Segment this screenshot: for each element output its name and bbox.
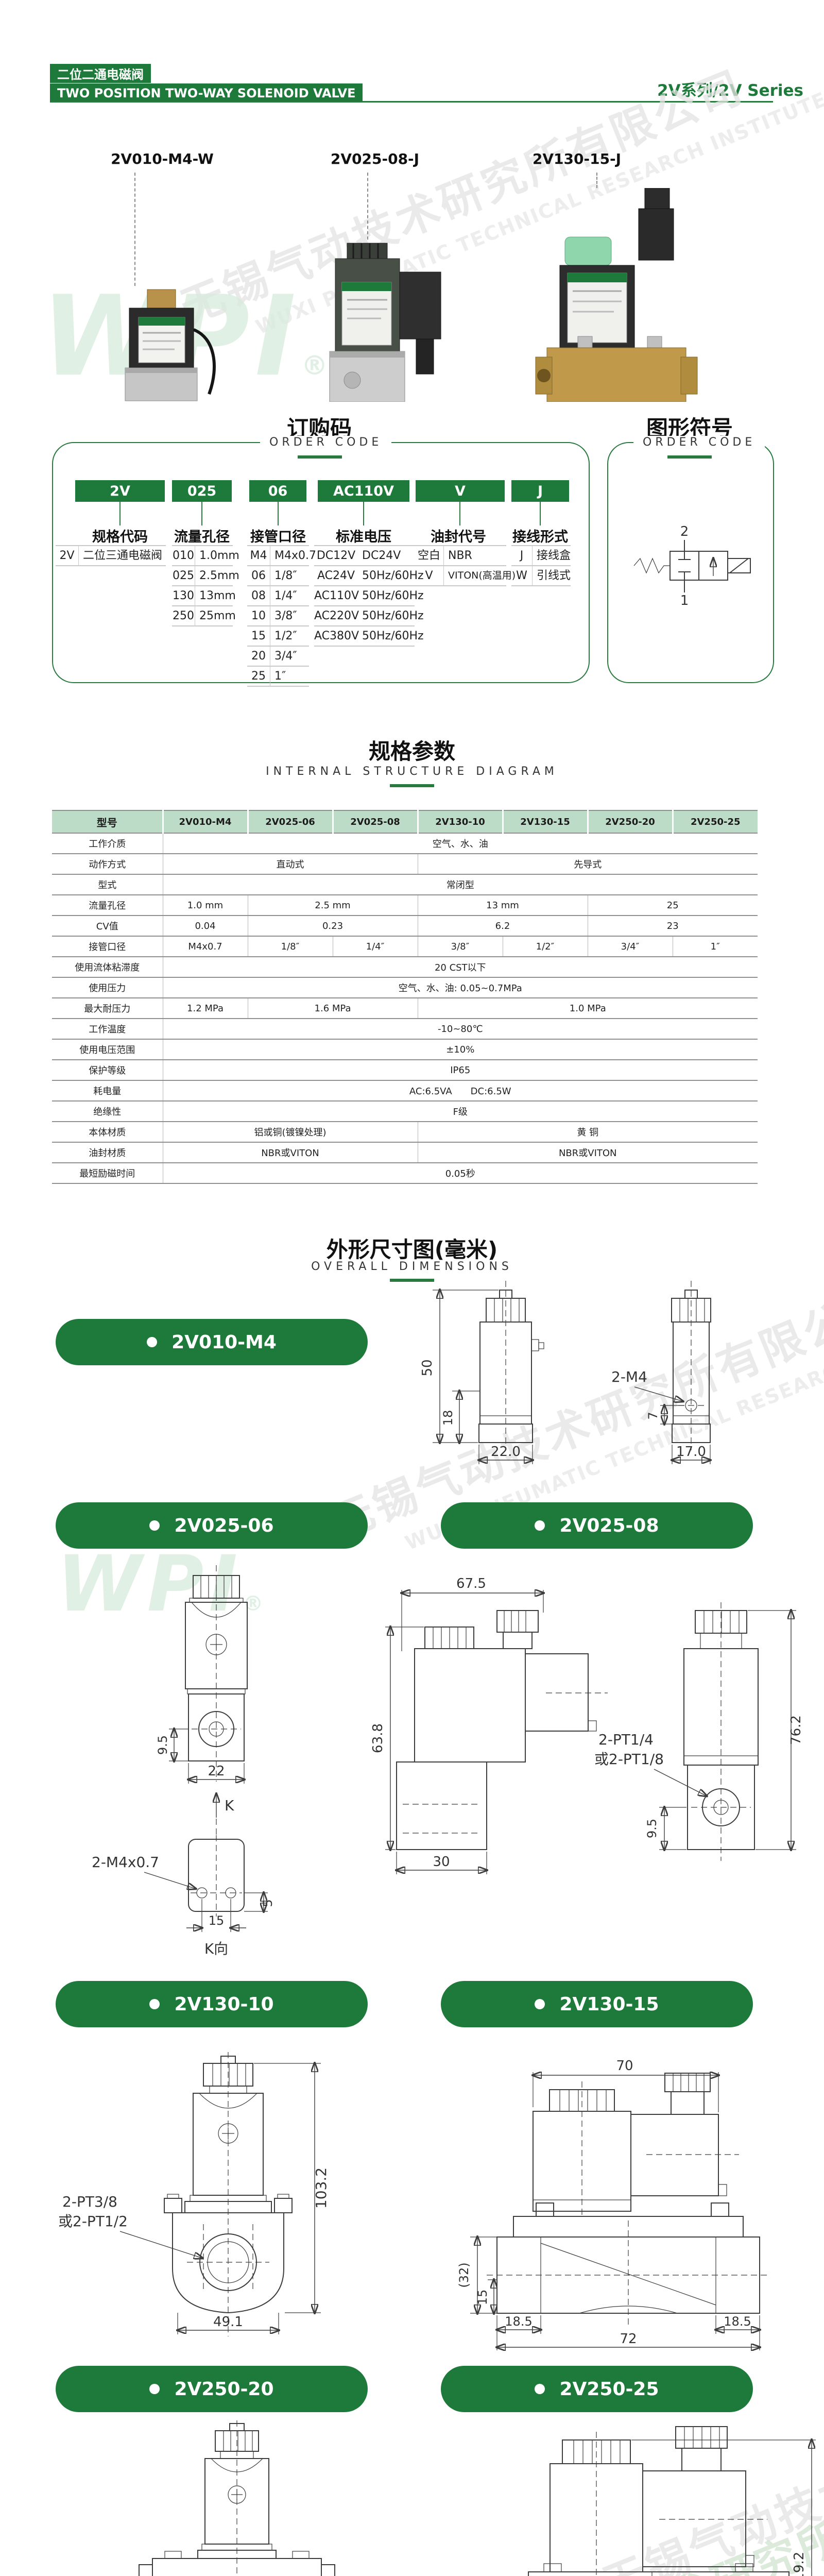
bullet-icon xyxy=(535,1999,545,2009)
svg-text:76.2: 76.2 xyxy=(788,1715,804,1745)
svg-text:7: 7 xyxy=(646,1412,660,1419)
spec-row: 动作方式直动式先导式 xyxy=(52,854,758,874)
svg-text:103.2: 103.2 xyxy=(313,2167,330,2209)
svg-text:2-PT3/8: 2-PT3/8 xyxy=(62,2193,117,2210)
header-badge-en: TWO POSITION TWO-WAY SOLENOID VALVE xyxy=(50,83,363,103)
dims-title-cn: 外形尺寸图(毫米) xyxy=(283,1232,541,1264)
series-label: 2V系列/2V Series xyxy=(603,77,803,100)
svg-text:72: 72 xyxy=(620,2331,637,2347)
group-table-orifice: 0101.0mm 0252.5mm 13013mm 25025mm xyxy=(172,545,233,626)
spec-model: 2V250-25 xyxy=(673,810,758,833)
group-label-seal: 油封代号 xyxy=(417,526,500,546)
pill-2v250-20: 2V250-20 xyxy=(56,2366,368,2412)
spec-row: 流量孔径1.0 mm2.5 mm13 mm25 xyxy=(52,895,758,916)
leader-dash-2 xyxy=(367,173,368,240)
pill-2v025-08: 2V025-08 xyxy=(441,1502,753,1549)
code-box-model: 2V xyxy=(75,480,165,502)
header-title-en: TWO POSITION TWO-WAY SOLENOID VALVE xyxy=(57,86,355,100)
drawing-2v025-06: 9.5 22 K 2-M4x0.7 15 5 K向 xyxy=(62,1551,412,1968)
group-table-port: M4M4x0.7 061/8″ 081/4″ 103/8″ 151/2″ 203… xyxy=(247,545,309,687)
group-label-wiring: 接线形式 xyxy=(499,526,581,546)
code-connector xyxy=(540,502,541,526)
svg-text:50: 50 xyxy=(420,1359,435,1376)
svg-text:K向: K向 xyxy=(204,1940,228,1957)
code-box-orifice: 025 xyxy=(172,480,232,502)
catalog-page: 二位二通电磁阀 TWO POSITION TWO-WAY SOLENOID VA… xyxy=(0,0,824,2576)
valve-symbol-diagram: 2 1 xyxy=(623,515,757,618)
svg-text:18.5: 18.5 xyxy=(724,2314,751,2329)
svg-text:67.5: 67.5 xyxy=(456,1576,486,1591)
svg-text:70: 70 xyxy=(616,2058,633,2074)
specs-title-en: INTERNAL STRUCTURE DIAGRAM xyxy=(257,765,566,778)
code-connector xyxy=(278,502,279,526)
pill-2v130-10: 2V130-10 xyxy=(56,1981,368,2027)
pill-2v025-06: 2V025-06 xyxy=(56,1502,368,1549)
code-connector xyxy=(119,502,121,526)
svg-text:17.0: 17.0 xyxy=(676,1444,706,1460)
spec-model: 2V025-08 xyxy=(333,810,418,833)
header-title-cn: 二位二通电磁阀 xyxy=(57,64,144,82)
drawing-2v250-20: 2-PT3/4 或2-PT1/2 77.5 xyxy=(51,2416,412,2576)
spec-table: 型号 2V010-M4 2V025-06 2V025-08 2V130-10 2… xyxy=(52,810,758,1184)
group-table-wiring: J接线盒 W引线式 xyxy=(511,545,571,586)
spec-model: 2V025-06 xyxy=(248,810,333,833)
svg-text:18: 18 xyxy=(441,1410,455,1426)
order-code-title-en: ORDER CODE xyxy=(260,436,391,449)
header-rule xyxy=(51,101,773,103)
pill-2v010-m4: 2V010-M4 xyxy=(56,1319,368,1365)
header-badge-cn: 二位二通电磁阀 xyxy=(50,64,151,83)
drawing-2v025-08: 67.5 63.8 30 76.2 2-PT1/4 或2-PT1/8 xyxy=(366,1561,819,1973)
svg-text:(32): (32) xyxy=(457,2262,471,2287)
group-table-voltage: DC12VDC24V AC24V50Hz/60Hz AC110V50Hz/60H… xyxy=(314,545,415,647)
product-label-2v130: 2V130-15-J xyxy=(512,150,641,167)
spec-row: 最短励磁时间0.05秒 xyxy=(52,1163,758,1183)
bullet-icon xyxy=(147,1337,157,1347)
drawing-2v130-10: 103.2 49.1 2-PT3/8 或2-PT1/2 xyxy=(32,2048,393,2349)
svg-text:15: 15 xyxy=(475,2290,490,2306)
code-box-port: 06 xyxy=(249,480,306,502)
spec-row: 使用电压范围±10% xyxy=(52,1039,758,1060)
svg-text:22.0: 22.0 xyxy=(491,1444,521,1460)
code-connector xyxy=(459,502,460,526)
order-code-bar xyxy=(298,455,342,459)
product-label-2v010: 2V010-M4-W xyxy=(98,150,227,167)
spec-row: 本体材质铝或铜(镀镍处理)黄 铜 xyxy=(52,1122,758,1142)
specs-bar xyxy=(390,784,434,787)
svg-text:2-M4: 2-M4 xyxy=(611,1368,647,1385)
code-connector xyxy=(363,502,364,526)
code-box-seal: V xyxy=(416,480,505,502)
svg-text:9.5: 9.5 xyxy=(156,1735,170,1755)
product-photo-2v025-08-j xyxy=(286,242,448,402)
svg-text:5: 5 xyxy=(261,1899,275,1907)
spec-row: 保护等级IP65 xyxy=(52,1060,758,1080)
svg-text:K: K xyxy=(225,1797,234,1814)
code-connector xyxy=(201,502,202,526)
spec-header-row: 型号 2V010-M4 2V025-06 2V025-08 2V130-10 2… xyxy=(52,810,758,833)
leader-dash-1 xyxy=(134,173,135,286)
spec-model: 2V130-10 xyxy=(418,810,503,833)
group-table-spec: 2V二位三通电磁阀 xyxy=(56,545,166,566)
spec-row: 使用压力空气、水、油: 0.05~0.7MPa xyxy=(52,977,758,998)
svg-text:9.5: 9.5 xyxy=(645,1819,659,1838)
product-photo-2v010-m4-w xyxy=(98,289,224,402)
product-label-2v025: 2V025-08-J xyxy=(311,150,439,167)
svg-text:15: 15 xyxy=(209,1913,225,1928)
symbol-title-en: ORDER CODE xyxy=(633,436,765,449)
spec-row: 油封材质NBR或VITONNBR或VITON xyxy=(52,1142,758,1163)
pill-2v250-25: 2V250-25 xyxy=(441,2366,753,2412)
drawing-2v250-25: 119.2 21 23 23 102 xyxy=(433,2416,824,2576)
spec-corner: 型号 xyxy=(52,810,163,833)
bullet-icon xyxy=(149,1999,160,2009)
group-label-orifice: 流量孔径 xyxy=(161,526,243,546)
svg-text:18.5: 18.5 xyxy=(505,2314,532,2329)
bullet-icon xyxy=(535,1520,545,1531)
svg-text:30: 30 xyxy=(433,1854,450,1870)
bullet-icon xyxy=(149,2384,160,2394)
spec-row: 最大耐压力1.2 MPa1.6 MPa1.0 MPa xyxy=(52,998,758,1019)
spec-row: 耗电量AC:6.5VA DC:6.5W xyxy=(52,1080,758,1101)
watermark-cn: 无锡气动技术研究所有限公司 xyxy=(170,0,824,336)
spec-model: 2V250-20 xyxy=(588,810,673,833)
bullet-icon xyxy=(535,2384,545,2394)
drawing-2v010-m4: 50 18 22.0 2-M4 7 17.0 xyxy=(403,1273,794,1479)
spec-model: 2V010-M4 xyxy=(163,810,248,833)
code-box-wiring: J xyxy=(511,480,569,502)
svg-text:22: 22 xyxy=(208,1764,225,1779)
watermark-diagonal-top: 无锡气动技术研究所有限公司 WUXI PNEUMATIC TECHNICAL R… xyxy=(170,0,824,362)
svg-text:63.8: 63.8 xyxy=(370,1723,386,1753)
pill-2v130-15: 2V130-15 xyxy=(441,1981,753,2027)
spec-row: 型式常闭型 xyxy=(52,874,758,895)
group-table-seal: 空白NBR VVITON(高温用) xyxy=(415,545,506,586)
spec-row: 绝缘性F级 xyxy=(52,1101,758,1122)
svg-text:2-PT1/4: 2-PT1/4 xyxy=(598,1731,654,1748)
spec-model: 2V130-15 xyxy=(503,810,588,833)
leader-dash-3 xyxy=(596,173,597,188)
spec-table-wrap: 型号 2V010-M4 2V025-06 2V025-08 2V130-10 2… xyxy=(52,810,758,1184)
product-photo-2v130-15-j xyxy=(516,188,698,402)
spec-row: 使用流体粘滞度20 CST以下 xyxy=(52,957,758,977)
symbol-bar xyxy=(667,455,712,459)
group-label-voltage: 标准电压 xyxy=(322,526,405,546)
svg-text:2-M4x0.7: 2-M4x0.7 xyxy=(92,1854,159,1871)
spec-row: 工作介质空气、水、油 xyxy=(52,833,758,854)
bullet-icon xyxy=(149,1520,160,1531)
svg-text:或2-PT1/2: 或2-PT1/2 xyxy=(58,2213,128,2230)
code-box-voltage: AC110V xyxy=(318,480,409,502)
svg-text:119.2: 119.2 xyxy=(792,2552,807,2576)
svg-text:49.1: 49.1 xyxy=(213,2314,243,2330)
specs-title-cn: 规格参数 xyxy=(309,734,515,766)
spec-row: 接管口径M4x0.71/8″1/4″3/8″1/2″3/4″1″ xyxy=(52,936,758,957)
dims-title-en: OVERALL DIMENSIONS xyxy=(257,1260,566,1273)
group-label-port: 接管口径 xyxy=(237,526,319,546)
symbol-port-1: 1 xyxy=(680,593,689,608)
spec-row: 工作温度-10~80℃ xyxy=(52,1019,758,1039)
svg-text:或2-PT1/8: 或2-PT1/8 xyxy=(594,1751,664,1768)
drawing-2v130-15: 70 (32) 15 18.5 18.5 72 xyxy=(430,2045,816,2352)
symbol-port-2: 2 xyxy=(680,524,689,539)
spec-row: CV值0.040.236.223 xyxy=(52,916,758,936)
